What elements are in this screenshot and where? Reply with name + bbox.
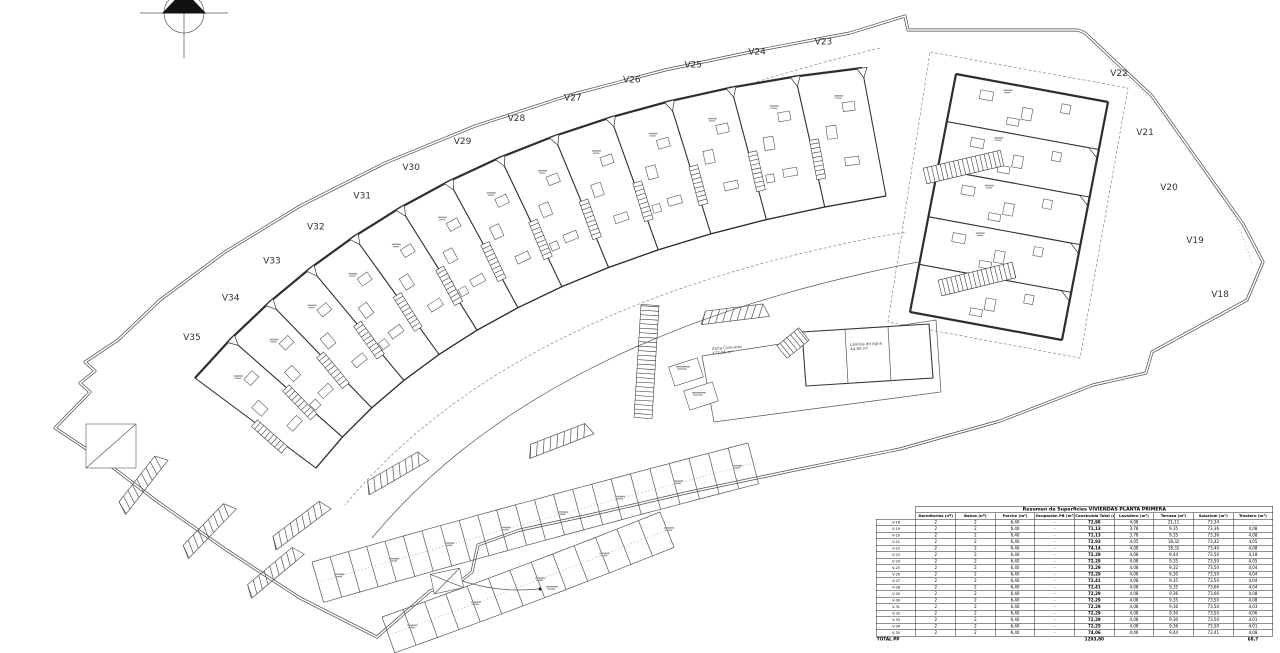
pseudo-text: [593, 153, 599, 154]
common-zone-label-line: 472,95 m²: [712, 349, 733, 355]
pseudo-text: [270, 341, 276, 342]
villa-label: V31: [353, 191, 371, 201]
total-cell: [1035, 636, 1075, 642]
pseudo-text: [269, 339, 278, 340]
furniture: [1002, 203, 1014, 217]
pseudo-text: [235, 378, 241, 379]
parking-divider: [510, 570, 523, 606]
furniture: [842, 101, 855, 111]
furniture: [984, 298, 996, 312]
villa-label: V20: [1160, 183, 1178, 193]
pergola-slat: [552, 434, 562, 448]
furniture: [970, 137, 984, 148]
pseudo-text: [592, 150, 601, 151]
parking-divider: [348, 552, 360, 592]
total-cell: [995, 636, 1035, 642]
total-cell: [1154, 636, 1194, 642]
column-header: Trastero (m²): [1233, 513, 1273, 520]
furniture: [1033, 247, 1043, 257]
pseudo-text: [1004, 92, 1010, 93]
pseudo-text: [677, 368, 687, 369]
pseudo-text: [349, 275, 355, 276]
plot-dotted-line: [1100, 52, 1252, 264]
pseudo-text: [664, 527, 674, 528]
utility-box: [430, 568, 464, 594]
pseudo-text: [502, 529, 509, 530]
furniture: [845, 156, 860, 166]
pergola-slat: [743, 306, 751, 320]
parking-divider: [638, 521, 652, 556]
pseudo-text: [995, 140, 1001, 141]
parking-divider: [425, 602, 438, 638]
column-header: Lavadero (m²): [1114, 513, 1154, 520]
pergola-slat: [707, 310, 715, 324]
total-cell: [1193, 636, 1233, 642]
pseudo-text: [986, 187, 992, 188]
villa-label: V27: [564, 93, 582, 103]
pergola-slat: [750, 305, 758, 319]
pseudo-text: [539, 172, 545, 173]
pseudo-text: [1003, 90, 1012, 91]
elevator-room: [684, 382, 719, 410]
furniture: [778, 111, 791, 122]
pseudo-text: [471, 601, 481, 602]
pseudo-text: [616, 498, 623, 499]
pool-label-line: 44,90 m²: [850, 346, 869, 352]
north-arrow-icon: [140, 0, 228, 58]
pseudo-text: [234, 375, 243, 376]
pergola-hatch: [268, 498, 331, 550]
pseudo-text: [771, 108, 777, 109]
pseudo-text: [487, 192, 496, 193]
furniture: [1021, 107, 1033, 121]
pseudo-text: [693, 394, 703, 395]
furniture: [993, 250, 1005, 264]
surface-summary-table: Resumen de Superficies VIVIENDAS PLANTA …: [876, 506, 1273, 643]
villa-label: V33: [263, 257, 281, 267]
pseudo-text: [692, 392, 706, 393]
pseudo-text: [977, 235, 983, 236]
parking-divider: [574, 546, 588, 581]
pseudo-text: [985, 185, 994, 186]
pseudo-text: [472, 604, 479, 605]
pergola-slat: [559, 431, 569, 445]
furniture: [961, 185, 975, 196]
total-cell: [1114, 636, 1154, 642]
leader-line: [462, 581, 538, 590]
pseudo-text: [501, 527, 511, 528]
pseudo-text: [546, 586, 558, 587]
pergola-slat: [545, 437, 555, 451]
pseudo-text: [994, 137, 1003, 138]
villa-label: V32: [307, 223, 325, 233]
table-header-row: Dormitorios (nº)Baños (nº)Porche (m²)Ocu…: [876, 513, 1273, 520]
parking-divider: [592, 484, 603, 525]
pseudo-text: [390, 560, 397, 561]
villa-label: V28: [508, 114, 526, 124]
villa-label: V26: [623, 76, 641, 86]
pergola-slat: [566, 429, 576, 443]
villa-label: V35: [183, 333, 201, 343]
pseudo-text: [392, 244, 401, 245]
villa-label: V21: [1136, 128, 1154, 138]
pergola-slat: [757, 304, 765, 318]
pseudo-text: [665, 530, 672, 531]
parking-divider: [446, 594, 459, 630]
pseudo-text: [393, 246, 399, 247]
parking-divider: [617, 529, 631, 564]
common-zone-label: Zona Comunes472,95 m²: [712, 344, 743, 356]
pseudo-text: [334, 574, 344, 575]
pergola-outline: [526, 422, 594, 459]
pergola-slat: [525, 444, 535, 458]
column-header: Ocupación PB (m²): [1035, 513, 1075, 520]
total-cell: 1293,80: [1074, 636, 1114, 642]
pergola-outline: [244, 544, 304, 598]
villa-label: V34: [222, 293, 240, 303]
pseudo-text: [709, 120, 715, 121]
floor-plan-sheet: Zona Comunes472,95 m²Lámina de agua44,90…: [0, 0, 1280, 653]
furniture: [652, 203, 662, 213]
furniture: [1012, 155, 1024, 169]
villa-label: V23: [815, 38, 833, 48]
pseudo-text: [547, 588, 555, 589]
pseudo-text: [408, 627, 415, 628]
pseudo-text: [538, 170, 547, 171]
leader-dot: [538, 587, 541, 590]
pergola-slat: [572, 426, 582, 440]
total-label: TOTAL PP: [876, 636, 916, 642]
pseudo-text: [649, 133, 658, 134]
pseudo-text: [536, 580, 543, 581]
furniture: [1024, 294, 1034, 304]
pseudo-text: [674, 483, 681, 484]
pool: [802, 324, 933, 386]
pseudo-text: [673, 480, 683, 481]
north-triangle: [163, 0, 205, 13]
pseudo-text: [308, 305, 317, 306]
villa-label: V24: [748, 48, 766, 58]
pergola-hatch: [525, 422, 594, 459]
villa-label: V19: [1186, 236, 1204, 246]
pergola-slat: [532, 442, 542, 456]
pseudo-text: [835, 98, 841, 99]
elevator-room: [669, 358, 704, 386]
furniture: [1051, 151, 1061, 161]
pseudo-text: [676, 366, 690, 367]
pseudo-text: [834, 95, 843, 96]
total-cell: 68,7: [1233, 636, 1273, 642]
table-total-row: TOTAL PP1293,8068,7: [876, 636, 1273, 642]
pergola-slat: [699, 311, 707, 325]
pseudo-text: [559, 514, 566, 515]
pseudo-text: [348, 273, 357, 274]
furniture: [1060, 104, 1070, 114]
parking-centerline: [388, 530, 667, 635]
parking-divider: [459, 520, 470, 560]
furniture: [763, 136, 775, 151]
pseudo-text: [615, 496, 625, 497]
pseudo-text: [488, 195, 494, 196]
parking-edge: [382, 512, 660, 617]
total-cell: [916, 636, 956, 642]
parking-divider: [422, 531, 433, 571]
villa-label: V18: [1211, 290, 1229, 300]
central-stairs: [634, 304, 659, 418]
pseudo-text: [650, 135, 656, 136]
furniture: [1042, 199, 1052, 209]
pseudo-text: [732, 465, 742, 466]
pseudo-text: [708, 118, 717, 119]
pergola-outline: [269, 498, 331, 549]
villa-label: V25: [684, 60, 702, 70]
pseudo-text: [389, 558, 399, 559]
pergola-slat: [721, 308, 729, 322]
villa-label: V30: [402, 163, 420, 173]
pseudo-text: [444, 542, 454, 543]
pergola-hatch: [243, 544, 304, 598]
pergola-slat: [539, 439, 549, 453]
pseudo-text: [599, 553, 609, 554]
pseudo-text: [309, 307, 315, 308]
furniture: [952, 233, 966, 244]
parking-divider: [488, 578, 501, 614]
villa-label: V22: [1110, 69, 1128, 79]
column-header: Dormitorios (nº): [916, 513, 956, 520]
column-header: Construida Total (m²): [1074, 513, 1114, 520]
pseudo-text: [976, 232, 985, 233]
pergola-slat: [579, 424, 589, 438]
furniture: [826, 125, 838, 139]
parking-divider: [516, 505, 527, 546]
pseudo-text: [439, 219, 445, 220]
total-cell: [956, 636, 996, 642]
pergola-outline: [700, 303, 769, 324]
pseudo-text: [438, 217, 447, 218]
column-header: Solarium (m²): [1193, 513, 1233, 520]
summary-table-wrap: Resumen de Superficies VIVIENDAS PLANTA …: [876, 506, 1276, 643]
pseudo-text: [770, 105, 779, 106]
furniture: [766, 174, 775, 183]
pergola-hatch: [699, 303, 769, 324]
parking-centerline: [318, 463, 754, 582]
furniture: [979, 90, 993, 101]
pseudo-text: [558, 511, 568, 512]
parking-divider: [534, 500, 545, 541]
villa-label: V29: [454, 137, 472, 147]
parking-edge: [395, 547, 674, 653]
parking-edge: [324, 484, 759, 603]
